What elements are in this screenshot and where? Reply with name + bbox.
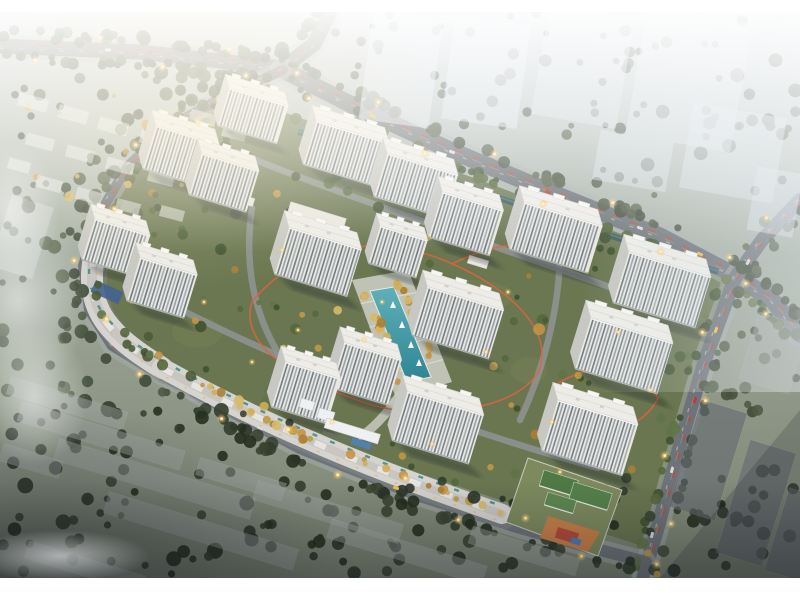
aerial-render-image bbox=[0, 0, 800, 600]
letterbox-top bbox=[0, 0, 800, 12]
letterbox-bottom bbox=[0, 578, 800, 600]
rendering-canvas bbox=[0, 0, 800, 600]
